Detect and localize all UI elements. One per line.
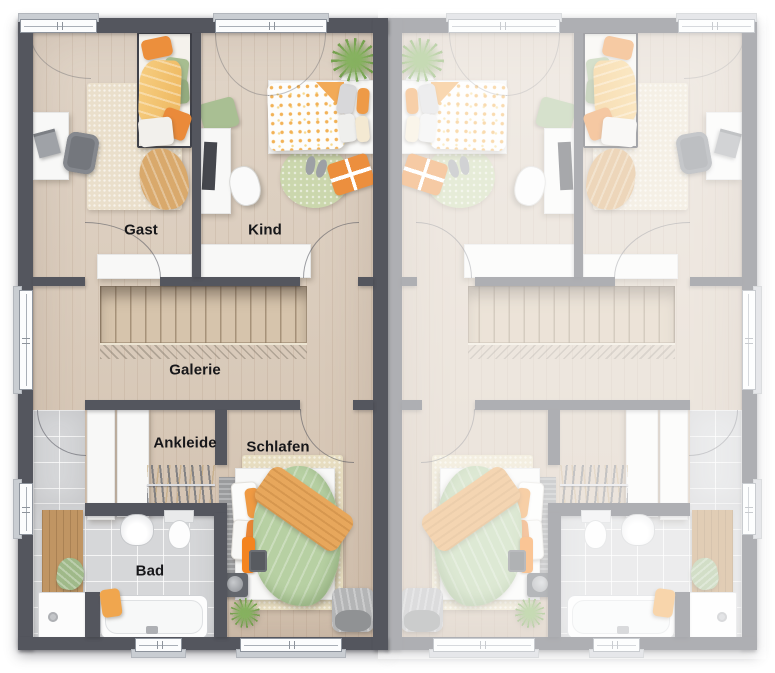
door-arc-schlafen [421, 409, 475, 463]
pillow [513, 487, 531, 519]
printer [714, 129, 742, 159]
washbasin [120, 514, 154, 546]
wall-rooms-gallery [690, 277, 742, 286]
wall-rooms-gallery [358, 277, 373, 286]
potted-plant [331, 38, 377, 82]
floor-plan-left: Gast Kind Galerie Ankleide Schlafen Bad [18, 18, 388, 650]
wall-gallery-bottomrooms [85, 400, 300, 410]
room-label-ankleide: Ankleide [153, 435, 216, 452]
wall-gast-kind [574, 33, 583, 277]
desk [544, 128, 578, 214]
washbasin [621, 514, 655, 546]
window-bad-bottom [135, 638, 182, 652]
clothes-rail-bar [560, 484, 628, 486]
potted-plant [398, 38, 444, 82]
pillow [585, 79, 609, 105]
bedroom-rug [432, 455, 533, 610]
wall-ankleide-schlafen [215, 410, 227, 465]
wardrobe-cabinet [660, 408, 688, 520]
floor-plan-canvas: Gast Kind Galerie Ankleide Schlafen Bad [0, 0, 775, 673]
wardrobe-cabinet [117, 408, 149, 517]
wall-rooms-gallery [475, 277, 615, 286]
duvet [430, 81, 508, 152]
wall-party [373, 18, 388, 650]
room-label-schlafen: Schlafen [246, 439, 309, 456]
pillow [516, 481, 545, 525]
window-gast [678, 19, 755, 33]
bench-blanket [401, 588, 443, 632]
shower-tray [689, 592, 737, 639]
slipper [458, 155, 470, 175]
clothes-rail [560, 465, 628, 505]
bathtub-faucet [617, 626, 629, 634]
wall-ankleide-bad [85, 503, 227, 516]
pillow [516, 519, 545, 561]
flower-stool [405, 72, 435, 97]
desk [706, 112, 742, 180]
towel [652, 588, 676, 619]
wall-party [387, 18, 402, 650]
laundry-basket [527, 573, 553, 597]
window-galerie [742, 290, 756, 390]
office-chair [510, 163, 549, 209]
floor-plan-right: Gast Kind Galerie Ankleide Schlafen Bad [387, 18, 757, 650]
bed-sheet [138, 116, 175, 147]
staircase [100, 286, 307, 343]
room-label-bad: Bad [136, 563, 165, 580]
bed-sheet [601, 116, 638, 147]
window-schlafen [433, 638, 535, 652]
duvet-fold [431, 82, 459, 112]
window-kind [215, 19, 327, 33]
pillow [405, 88, 419, 115]
pillow [418, 83, 440, 115]
wall-gallery-bottomrooms [475, 400, 690, 410]
window-kind [448, 19, 560, 33]
wall-gast-kind [192, 33, 201, 277]
wall-exterior-left [742, 18, 757, 650]
shower-drain [717, 612, 727, 622]
wall-rooms-gallery [33, 277, 85, 286]
toilet-bowl [584, 520, 607, 549]
sideboard [583, 254, 678, 279]
pillow [585, 56, 612, 85]
room-label-kind: Kind [248, 222, 282, 239]
folded-throw [404, 610, 440, 632]
floor-plant [230, 598, 260, 628]
wall-bad-schlafen [548, 513, 561, 637]
pillow [355, 115, 371, 142]
house-outline-shadow [387, 18, 757, 650]
single-bed [583, 32, 638, 148]
pillow [356, 88, 370, 115]
round-rug [425, 146, 495, 208]
rug [593, 83, 688, 210]
blanket [593, 59, 637, 122]
window-bad [742, 483, 756, 535]
wardrobe-cabinet [626, 408, 658, 517]
window-sill [429, 649, 539, 658]
double-bed [440, 468, 540, 600]
room-label-gast: Gast [124, 222, 158, 239]
bed-towel [520, 537, 533, 573]
toilet-tank [581, 510, 611, 523]
window-sill [446, 13, 562, 22]
duvet [434, 466, 522, 606]
tray [508, 550, 526, 572]
pillow [601, 35, 635, 61]
monitor [558, 142, 573, 191]
wall-ankleide-bad [548, 503, 690, 516]
room-label-galerie: Galerie [169, 362, 221, 379]
gift-pillow [399, 152, 449, 196]
shower-tray [38, 592, 86, 639]
headboard [540, 477, 556, 575]
window-swing-arc [506, 33, 560, 96]
laundry-basket-lid [532, 576, 548, 592]
door-arc-gast [614, 222, 690, 278]
window-sill [753, 479, 762, 539]
wall-gallery-bottomrooms [402, 400, 422, 410]
sideboard [464, 244, 578, 278]
tray [249, 550, 267, 572]
bed-runner [418, 463, 524, 555]
wall-shower-stub [675, 592, 690, 637]
stair-railing [468, 343, 675, 359]
towel [688, 556, 720, 592]
window-sill [676, 13, 757, 22]
bathtub-faucet [146, 626, 158, 634]
window-sill [753, 286, 762, 394]
wall-shower-stub [85, 592, 100, 637]
laundry-basket-lid [227, 576, 243, 592]
bathtub [567, 595, 675, 639]
armchair [675, 131, 713, 176]
sideboard [197, 244, 311, 278]
pillow [405, 115, 421, 142]
window-swing-arc [449, 33, 507, 96]
wall-gallery-bottomrooms [353, 400, 373, 410]
kids-bed [400, 80, 507, 154]
pillow [582, 106, 618, 142]
bathtub-basin [572, 600, 670, 634]
window-schlafen [240, 638, 342, 652]
folded-throw [335, 610, 371, 632]
stair-railing [100, 343, 307, 359]
door-arc-kind [416, 222, 472, 278]
floor-cushion [535, 96, 578, 134]
window-sill [589, 649, 644, 658]
wood-floor [402, 33, 742, 637]
wall-exterior-top [387, 18, 757, 33]
clothes-rail-bar [147, 484, 215, 486]
throw-blanket [583, 145, 639, 213]
toilet-bowl [168, 520, 191, 549]
monitor [202, 142, 217, 191]
wall-rooms-gallery [160, 277, 300, 286]
window-bad-bottom [593, 638, 640, 652]
wall-bad-schlafen [214, 513, 227, 637]
towel [99, 588, 123, 619]
window-bad [19, 483, 33, 535]
slipper [446, 158, 460, 179]
window-swing-arc [684, 33, 745, 79]
door-arc-bad [689, 410, 738, 456]
bath-tile-floor [560, 503, 742, 637]
shower-drain [48, 612, 58, 622]
floor-plant [515, 598, 545, 628]
wall-rooms-gallery [402, 277, 417, 286]
wall-exterior-bottom [387, 637, 757, 650]
wall-ankleide-schlafen [548, 410, 560, 465]
window-gast [20, 19, 97, 33]
bath-tile-floor-corridor [690, 410, 742, 505]
window-galerie [19, 290, 33, 390]
staircase [468, 286, 675, 343]
bath-mat [692, 510, 733, 595]
pillow [417, 113, 438, 143]
pillow [513, 519, 530, 550]
